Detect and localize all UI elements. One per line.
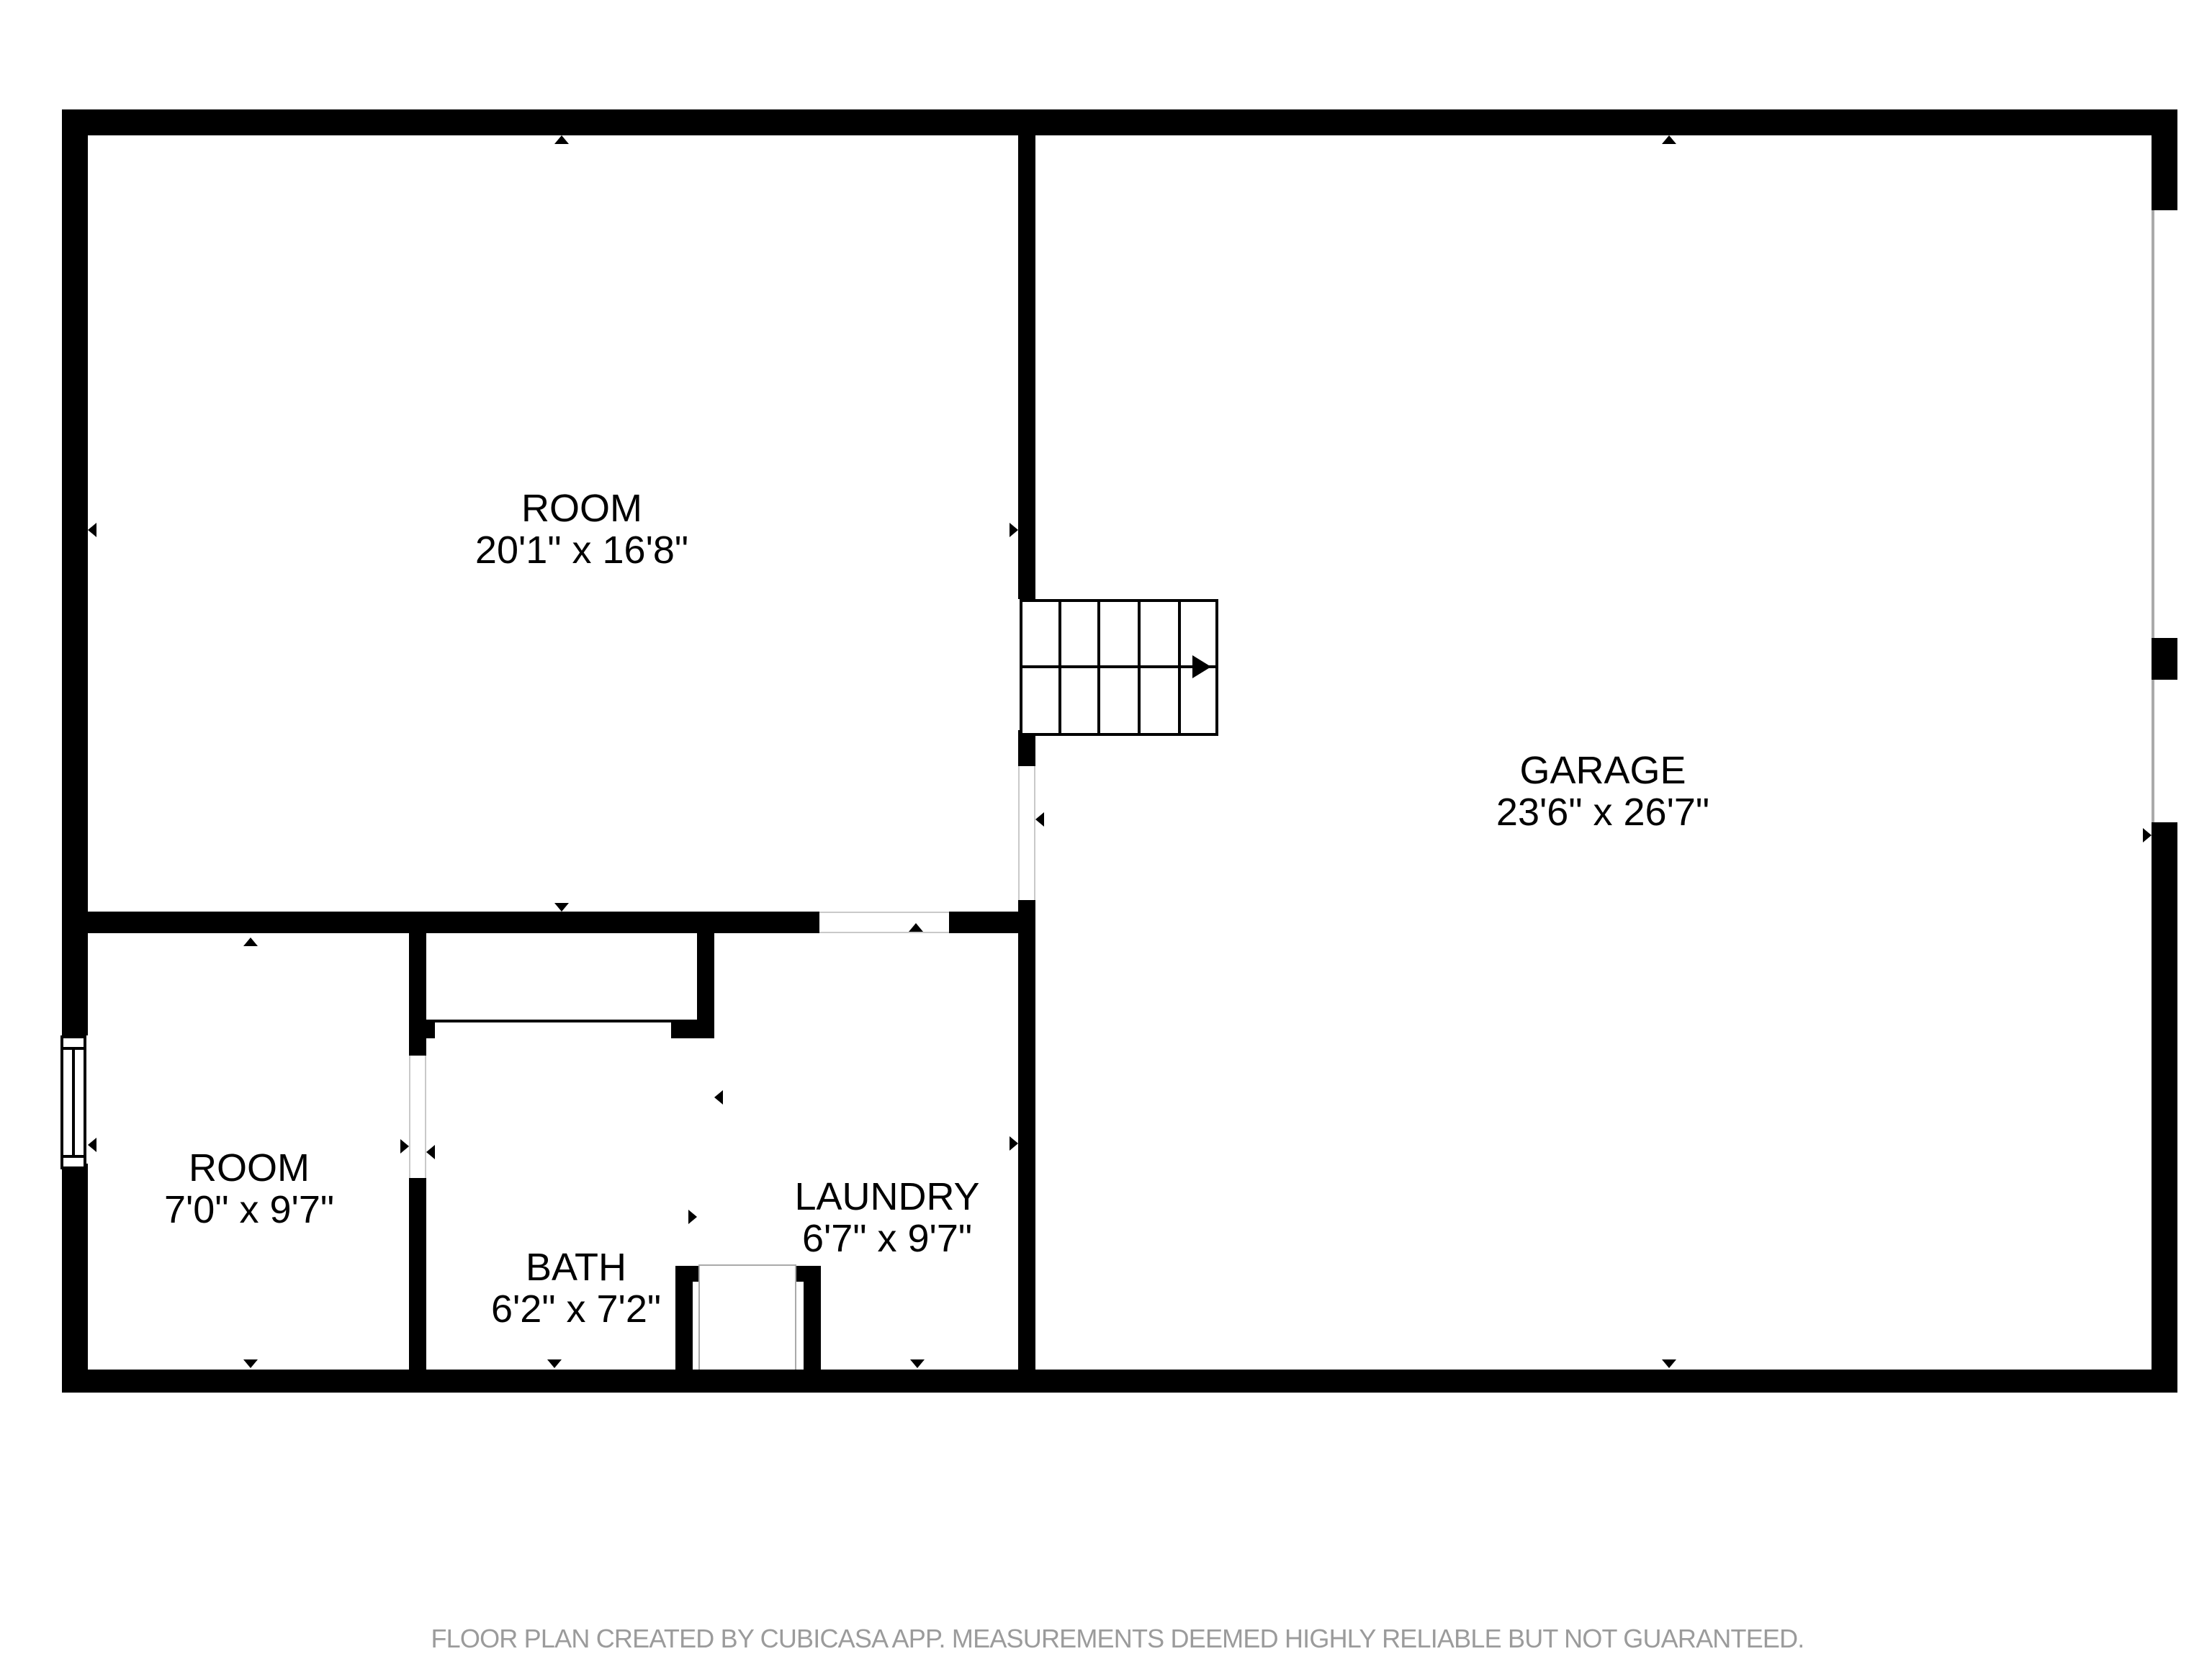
- dimension-arrow-left-icon: [714, 1090, 723, 1105]
- wall-exterior-right-middle: [2152, 638, 2177, 680]
- room-dimensions: 7'0" x 9'7": [164, 1190, 334, 1231]
- room-bath-door-line-left: [409, 1056, 410, 1178]
- footer-disclaimer: FLOOR PLAN CREATED BY CUBICASA APP. MEAS…: [431, 1624, 1804, 1655]
- stair-arrow-icon: [1192, 655, 1211, 678]
- room-label-room-bottom: ROOM 7'0" x 9'7": [164, 1148, 334, 1231]
- dimension-arrow-right-icon: [2143, 828, 2152, 842]
- wall-horizontal-left: [88, 912, 819, 933]
- stair-arrow-shaft: [1022, 665, 1198, 668]
- room-dimensions: 23'6" x 26'7": [1496, 792, 1709, 834]
- dimension-arrow-up-icon: [243, 938, 258, 946]
- room-label-laundry: LAUNDRY 6'7" x 9'7": [794, 1177, 979, 1260]
- dimension-arrow-right-icon: [1010, 1136, 1018, 1151]
- dimension-arrow-left-icon: [88, 1138, 96, 1152]
- wall-room-bath-stub: [426, 1020, 435, 1038]
- divider-door-opening-line-right: [1034, 766, 1035, 900]
- dimension-arrow-up-icon: [554, 135, 569, 144]
- wall-exterior-top: [62, 109, 2177, 135]
- wall-divider-upper: [1018, 135, 1035, 599]
- window-frame-center-bar: [72, 1050, 75, 1155]
- room-name: BATH: [491, 1247, 661, 1289]
- doorway-jamb-left-cap: [675, 1266, 698, 1282]
- room-dimensions: 20'1" x 16'8": [475, 530, 688, 572]
- wall-room-bath-upper: [409, 933, 426, 1056]
- dimension-arrow-left-icon: [1035, 812, 1044, 827]
- wall-bath-laundry: [697, 933, 714, 1038]
- doorway-frame-left: [698, 1264, 700, 1370]
- wall-exterior-left-lower: [62, 1164, 88, 1370]
- wall-divider-lower: [1018, 900, 1035, 1370]
- doorway-frame-top: [698, 1264, 796, 1266]
- room-bath-door-line-right: [425, 1056, 426, 1178]
- wall-exterior-left-upper: [62, 109, 88, 1035]
- doorway-jamb-right-cap: [796, 1266, 821, 1282]
- divider-door-opening-line-left: [1018, 766, 1020, 900]
- room-label-room-top: ROOM 20'1" x 16'8": [475, 488, 688, 572]
- room-name: LAUNDRY: [794, 1177, 979, 1218]
- window-frame-bottom-bar: [63, 1155, 84, 1158]
- dimension-arrow-right-icon: [1010, 523, 1018, 537]
- dimension-arrow-down-icon: [910, 1359, 925, 1368]
- stairs-icon: [1020, 599, 1218, 736]
- room-name: ROOM: [475, 488, 688, 530]
- dimension-arrow-right-icon: [688, 1210, 697, 1224]
- bath-closet-front-line: [435, 1020, 671, 1022]
- wall-exterior-bottom: [62, 1370, 2177, 1393]
- laundry-opening-line-top: [819, 912, 949, 913]
- wall-exterior-right-lower: [2152, 822, 2177, 1370]
- floor-plan: ROOM 20'1" x 16'8" GARAGE 23'6" x 26'7" …: [0, 0, 2212, 1659]
- room-label-bath: BATH 6'2" x 7'2": [491, 1247, 661, 1331]
- room-label-garage: GARAGE 23'6" x 26'7": [1496, 750, 1709, 834]
- room-dimensions: 6'7" x 9'7": [794, 1218, 979, 1260]
- doorway-jamb-left: [675, 1282, 693, 1370]
- dimension-arrow-right-icon: [400, 1139, 409, 1154]
- garage-door-opening-line-upper: [2152, 210, 2154, 638]
- doorway-frame-right: [795, 1264, 796, 1370]
- wall-bath-laundry-stub: [671, 1020, 697, 1038]
- room-dimensions: 6'2" x 7'2": [491, 1289, 661, 1331]
- dimension-arrow-up-icon: [909, 923, 923, 932]
- laundry-opening-line-bottom: [819, 932, 949, 933]
- dimension-arrow-left-icon: [88, 523, 96, 537]
- wall-exterior-right-upper: [2152, 109, 2177, 210]
- garage-door-opening-line-lower: [2152, 680, 2154, 822]
- dimension-arrow-up-icon: [1662, 135, 1676, 144]
- dimension-arrow-down-icon: [547, 1359, 562, 1368]
- doorway-jamb-right: [804, 1282, 821, 1370]
- dimension-arrow-down-icon: [554, 903, 569, 912]
- wall-room-bath-lower: [409, 1178, 426, 1370]
- dimension-arrow-down-icon: [1662, 1359, 1676, 1368]
- window-icon: [60, 1035, 86, 1169]
- dimension-arrow-left-icon: [426, 1145, 435, 1159]
- room-name: GARAGE: [1496, 750, 1709, 792]
- room-name: ROOM: [164, 1148, 334, 1190]
- wall-horizontal-right: [949, 912, 1020, 933]
- dimension-arrow-down-icon: [243, 1359, 258, 1368]
